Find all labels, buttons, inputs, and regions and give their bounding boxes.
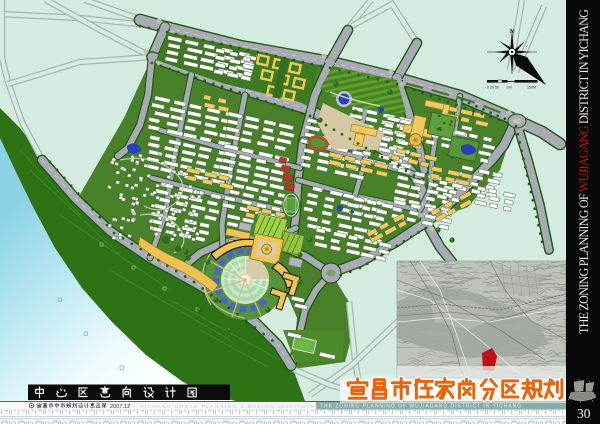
svg-text:THE ZONING PLANNING OF WUJIAGA: THE ZONING PLANNING OF WUJIAGANG DISTRIC… <box>320 404 522 410</box>
svg-text:YICHANG URBAN PLANNING & DESIG: YICHANG URBAN PLANNING & DESIGN INSTITUT… <box>140 404 316 410</box>
svg-text:150M: 150M <box>527 86 536 90</box>
svg-text:THE ZONING PLANNING OF WUJIAGA: THE ZONING PLANNING OF WUJIAGANG DISTRIC… <box>577 9 591 334</box>
svg-text:N: N <box>510 28 515 35</box>
svg-text:30: 30 <box>577 406 591 421</box>
svg-text:2007.12: 2007.12 <box>110 404 130 410</box>
svg-text:100: 100 <box>506 86 512 90</box>
svg-text:0 20 50: 0 20 50 <box>487 86 499 90</box>
